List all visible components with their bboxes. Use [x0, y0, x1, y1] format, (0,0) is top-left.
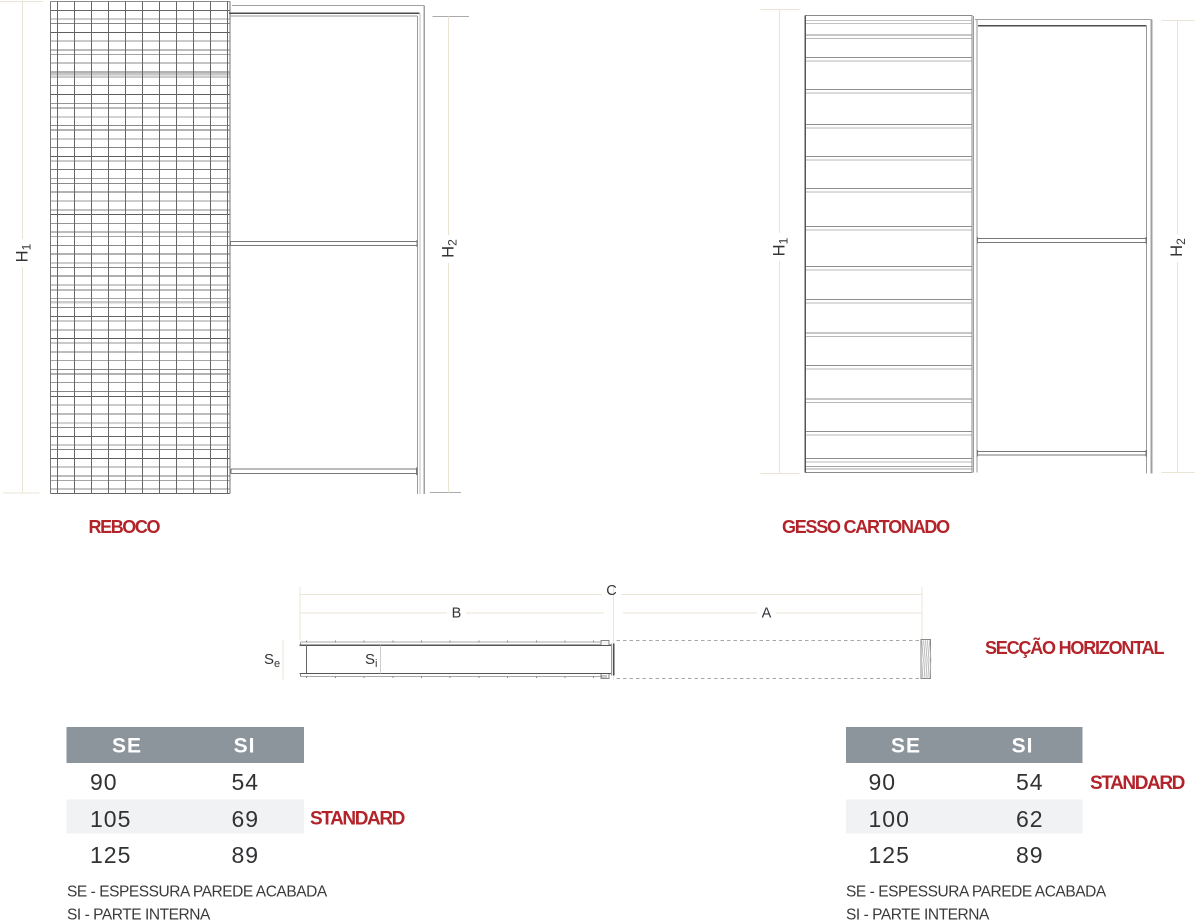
- svg-text:STANDARD: STANDARD: [310, 809, 405, 830]
- svg-text:SE: SE: [891, 735, 921, 758]
- svg-text:SE - ESPESSURA PAREDE ACABADA: SE - ESPESSURA PAREDE ACABADA: [67, 884, 328, 901]
- svg-text:125: 125: [90, 842, 131, 868]
- svg-text:54: 54: [232, 769, 260, 795]
- svg-text:REBOCO: REBOCO: [89, 517, 161, 537]
- svg-text:100: 100: [869, 806, 910, 832]
- svg-text:SI - PARTE INTERNA: SI - PARTE INTERNA: [67, 907, 211, 923]
- svg-text:90: 90: [869, 769, 897, 795]
- svg-text:69: 69: [232, 806, 260, 832]
- svg-text:SI: SI: [1012, 735, 1034, 758]
- svg-text:SI - PARTE INTERNA: SI - PARTE INTERNA: [846, 907, 990, 923]
- svg-text:54: 54: [1016, 769, 1044, 795]
- svg-text:125: 125: [869, 842, 910, 868]
- svg-text:SE - ESPESSURA PAREDE ACABADA: SE - ESPESSURA PAREDE ACABADA: [846, 884, 1107, 901]
- svg-text:SECÇÃO HORIZONTAL: SECÇÃO HORIZONTAL: [985, 637, 1164, 658]
- svg-text:STANDARD: STANDARD: [1090, 773, 1185, 794]
- svg-text:SE: SE: [112, 735, 142, 758]
- svg-text:90: 90: [90, 769, 118, 795]
- svg-text:B: B: [452, 606, 462, 622]
- svg-text:89: 89: [1016, 842, 1044, 868]
- svg-text:C: C: [606, 583, 616, 599]
- svg-text:105: 105: [90, 806, 131, 832]
- svg-text:SI: SI: [234, 735, 256, 758]
- svg-text:89: 89: [232, 842, 260, 868]
- svg-text:GESSO CARTONADO: GESSO CARTONADO: [782, 517, 950, 537]
- svg-text:62: 62: [1016, 806, 1044, 832]
- svg-text:A: A: [762, 606, 772, 622]
